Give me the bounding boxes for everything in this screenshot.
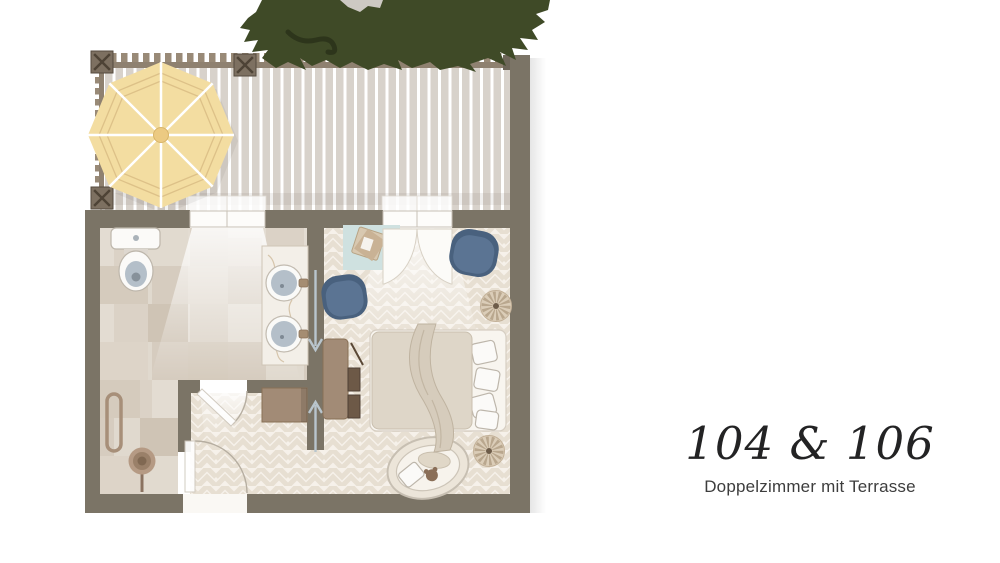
- railing-post: [234, 54, 256, 76]
- caption: 104 & 106 Doppelzimmer mit Terrasse: [665, 420, 955, 497]
- door-mat: [382, 196, 452, 211]
- double-vanity: [262, 246, 308, 365]
- building-shadow: [530, 58, 546, 513]
- room-title: 104 & 106: [665, 420, 955, 467]
- railing-post: [91, 187, 113, 209]
- cabinet-edge: [301, 388, 307, 422]
- rattan-stool: [481, 291, 512, 322]
- rattan-stool: [474, 436, 505, 467]
- tree-canopy: [240, 0, 550, 72]
- room-subtitle: Doppelzimmer mit Terrasse: [665, 477, 955, 497]
- railing-post: [91, 51, 113, 73]
- wardrobe-cabinet: [262, 388, 307, 422]
- floorplan-page: 104 & 106 Doppelzimmer mit Terrasse: [0, 0, 1000, 563]
